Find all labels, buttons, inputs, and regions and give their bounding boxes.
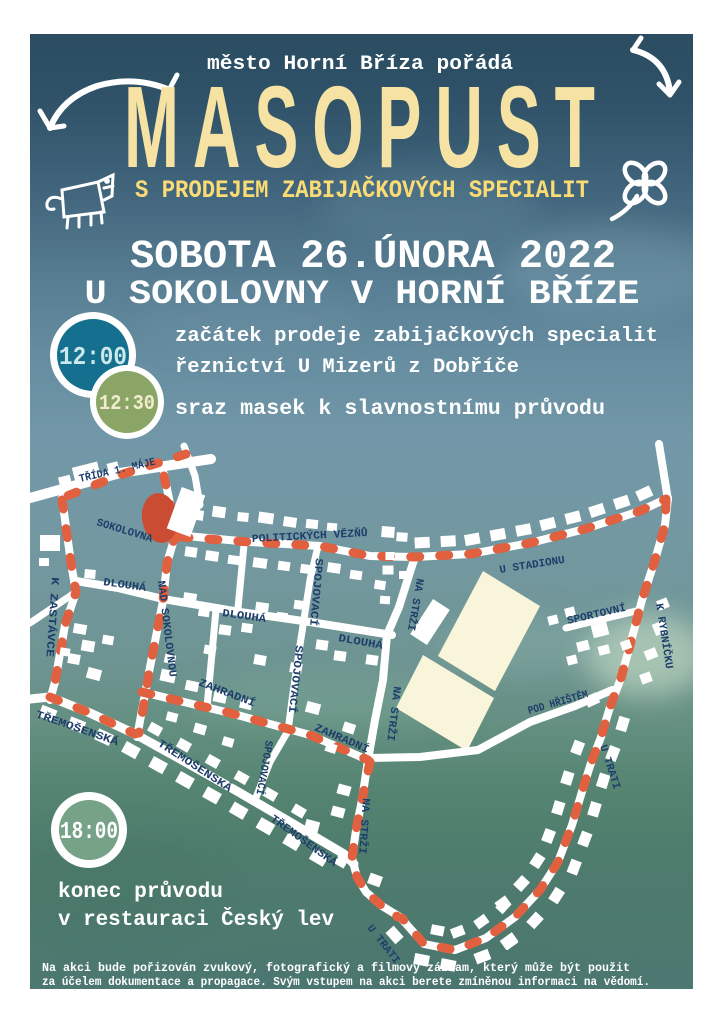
svg-text:začátek prodeje zabijačkových: začátek prodeje zabijačkových specialit [175, 325, 658, 348]
svg-text:MASOPUST: MASOPUST [124, 62, 609, 192]
svg-text:18:00: 18:00 [60, 819, 118, 846]
svg-text:U SOKOLOVNY V HORNÍ BŘÍZE: U SOKOLOVNY V HORNÍ BŘÍZE [85, 275, 640, 314]
svg-text:řeznictví U Mizerů z Dobříče: řeznictví U Mizerů z Dobříče [175, 356, 519, 379]
svg-text:za účelem dokumentace a propag: za účelem dokumentace a propagace. Svým … [42, 976, 650, 989]
svg-text:12:30: 12:30 [99, 393, 155, 416]
svg-text:SOBOTA 26.ÚNORA 2022: SOBOTA 26.ÚNORA 2022 [130, 232, 616, 280]
svg-text:Na akci bude pořizován zvukový: Na akci bude pořizován zvukový, fotograf… [42, 962, 630, 975]
svg-text:konec průvodu: konec průvodu [58, 881, 223, 904]
svg-text:sraz masek k slavnostnímu prův: sraz masek k slavnostnímu průvodu [175, 397, 605, 421]
svg-text:S PRODEJEM ZABIJAČKOVÝCH SPECI: S PRODEJEM ZABIJAČKOVÝCH SPECIALIT [135, 175, 589, 205]
svg-text:v restauraci Český lev: v restauraci Český lev [58, 908, 334, 932]
